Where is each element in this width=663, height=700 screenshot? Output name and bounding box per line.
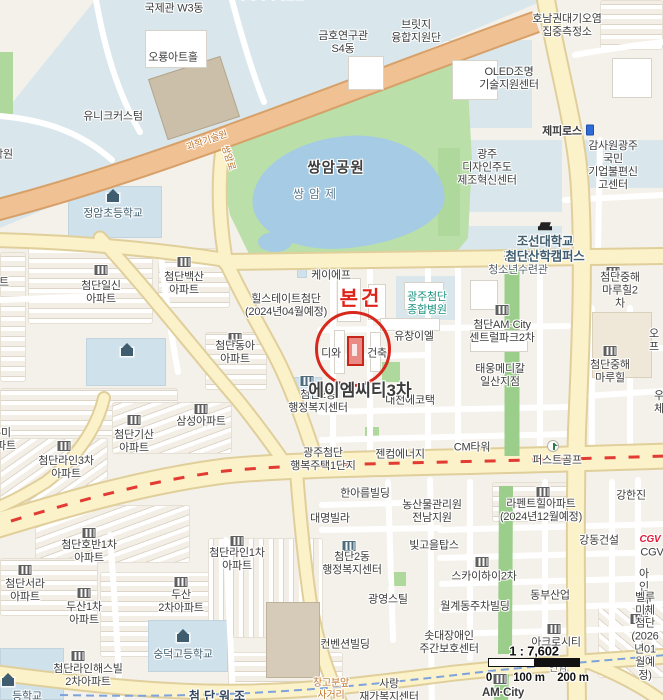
label-dongbu: 동부산업 [530,590,570,603]
label-oled: OLED조명 기술지원센터 [479,66,539,92]
label-kf: 케이에프 [311,270,351,283]
label-gamsawon: 감사원광주국민 기업불편신고센터 [588,140,638,192]
apartment-icon [496,305,509,315]
apartment-icon [128,415,141,425]
label-honam: 호남권대기오염 집중측정소 [532,13,601,39]
scale-tick-0: 0 [486,672,492,686]
label-ssangam-park: 쌍암공원 [307,160,364,177]
label-sarang: 사랑 재가복지센터 [359,678,419,700]
label-amcity-bottom: AM·City [482,687,524,700]
label-kangdong: 강동건설 [579,535,619,548]
label-cgv: CGV [640,547,663,560]
school-icon [107,194,119,202]
label-bitgoeul: 빛고을탑스 [409,540,459,553]
label-changgo-crossing: 창고분앞 사거리 [313,678,349,700]
label-seora: 첨단서라 아파트 [5,578,45,604]
school-icon [121,348,133,356]
yuchang-building [380,318,440,331]
label-gencom: 젠컴에너지 [375,449,425,462]
label-gukjegwan: 국제관 W3동 [145,3,204,16]
label-taewoong: 태웅메디칼 일산지점 [475,363,525,389]
scale-ratio: 1 : 7,602 [509,643,559,658]
label-jeongam-school: 정암초등학교 [83,208,143,221]
poi-flag-marker-icon [586,125,594,136]
label-line3: 첨단라인3차 아파트 [38,455,94,481]
label-geonchuk: 건축 [367,348,387,361]
apartment-icon [95,265,108,275]
label-hagwon: 학원 [0,149,13,162]
label-design-center: 광주 디자인주도 제조혁신센터 [457,149,517,188]
apartment-icon [175,577,188,587]
label-gisan: 첨단기산 아파트 [114,429,154,455]
government-building-icon [343,541,356,551]
apartment-icon [78,588,91,598]
label-admin-center-2: 첨단2동 행정복지센터 [322,551,382,577]
label-subject-bongeon: 본건 [340,288,383,312]
label-firstgolf: 퍼스트골프 [532,455,582,468]
label-hospital: 광주첨단 종합병원 [407,291,447,317]
label-baeksan: 첨단백산 아파트 [164,271,204,297]
label-diwa: 디와 [321,348,341,361]
label-skyhigh: 스카이하이2차 [451,571,516,584]
label-hoban: 첨단호반1차 아파트 [61,539,117,565]
label-line1: 첨단라인1차 아파트 [209,547,265,573]
school-icon [2,678,14,686]
apartment-icon [231,536,244,546]
label-wolgye: 월계동주차빌딩 [440,601,509,614]
scale-tick-200: 200 m [557,672,589,686]
scale-tick-100: 100 m [513,672,545,686]
label-convention: 컨벤션빌딩 [320,639,370,652]
label-donga: 첨단동아 아파트 [215,340,255,366]
label-energyhall: 국가에너지체험관 [225,0,304,2]
label-junghae1: 첨단중해 마루힐 [590,359,630,385]
label-oryong: 오룡아트홀 [148,52,198,65]
apartment-icon [83,528,96,538]
apartment-icon [604,346,617,356]
label-junghae2: 첨단중해마루힐2차 [599,272,642,311]
label-ssangamje: 쌍암제 [293,187,341,201]
label-dusan2: 두산 2차아파트 [158,589,204,615]
cgv-logo: CGV [639,534,660,546]
label-daemyung: 대명빌라 [310,513,350,526]
label-yuchang: 유창이엘 [394,331,434,344]
label-hillstate: 힐스테이트첨단 (2024년04월예정) [245,293,327,319]
topright-building [612,58,652,98]
label-haesville: 첨단라인해스빌 2차아파트 [53,663,122,689]
label-samsung: 삼성아파트 [176,416,226,429]
map-canvas[interactable]: 국제관 W3동 국가에너지체험관 오룡아트홀 유니크커스텀 브릿지 융합지원단 … [0,0,663,700]
label-gwangyoung: 광영스틸 [368,594,408,607]
label-bridge: 브릿지 융합지원단 [391,19,441,45]
apartment-icon [58,441,71,451]
scale-bar-dark-half [534,659,579,666]
apartment-icon [548,624,561,634]
label-cmtower: CM타워 [454,442,491,455]
label-bellumiche: 벨루미체첨단 (2026년01월예정) [631,592,658,683]
label-kanghanjin: 강한진 [616,490,646,503]
label-school-cut: 등학교 [12,691,42,700]
graduation-cap-icon [538,226,552,230]
label-opeu: 오프 [649,328,659,354]
label-sotdae: 솟대장애인 주간보호센터 [419,630,479,656]
apartment-icon [72,651,85,661]
apartment-icon [178,257,191,267]
school-icon [177,634,189,642]
apartment-icon [476,557,489,567]
geumho-building [348,56,384,90]
label-amcity2: 첨단AM·City 센트럴파크2차 [469,319,534,345]
apartment-icon [537,487,550,497]
amcity-building [470,280,498,310]
convention-big-building [266,602,320,678]
label-sungduk: 숭덕고등학교 [153,649,213,662]
label-umi: 우미 아파트 [0,427,16,453]
label-lafent: 라펜트힐아파트 (2024년12월예정) [500,498,582,524]
label-hanareum: 한아름빌딩 [340,488,390,501]
golf-flag-icon [547,440,559,452]
label-unique: 유니크커스텀 [83,111,143,124]
apartment-icon [19,565,32,575]
label-nongsanmul: 농산물관리원 전남지원 [402,499,462,525]
label-ilsin: 첨단일신 아파트 [81,280,121,306]
scale-bar [488,658,580,667]
apartment-icon [494,674,507,684]
apartment-icon [195,404,208,414]
label-zephyros: 제피로스 [542,126,582,139]
label-chosun-univ: 조선대학교 첨단산학캠퍼스 [505,234,584,264]
label-amcity3: 에이엠씨티3차 [308,381,411,401]
label-haengbok: 광주첨단 행복주택1단지 [290,447,355,473]
label-district-spaced: 첨단워조 [189,689,249,700]
label-geumho: 금호연구관 S4동 [318,30,368,56]
label-apt-cut: 아파트 [0,277,9,290]
label-dusan1: 두산1차 아파트 [66,601,102,627]
label-uche: 우체 [654,390,663,416]
